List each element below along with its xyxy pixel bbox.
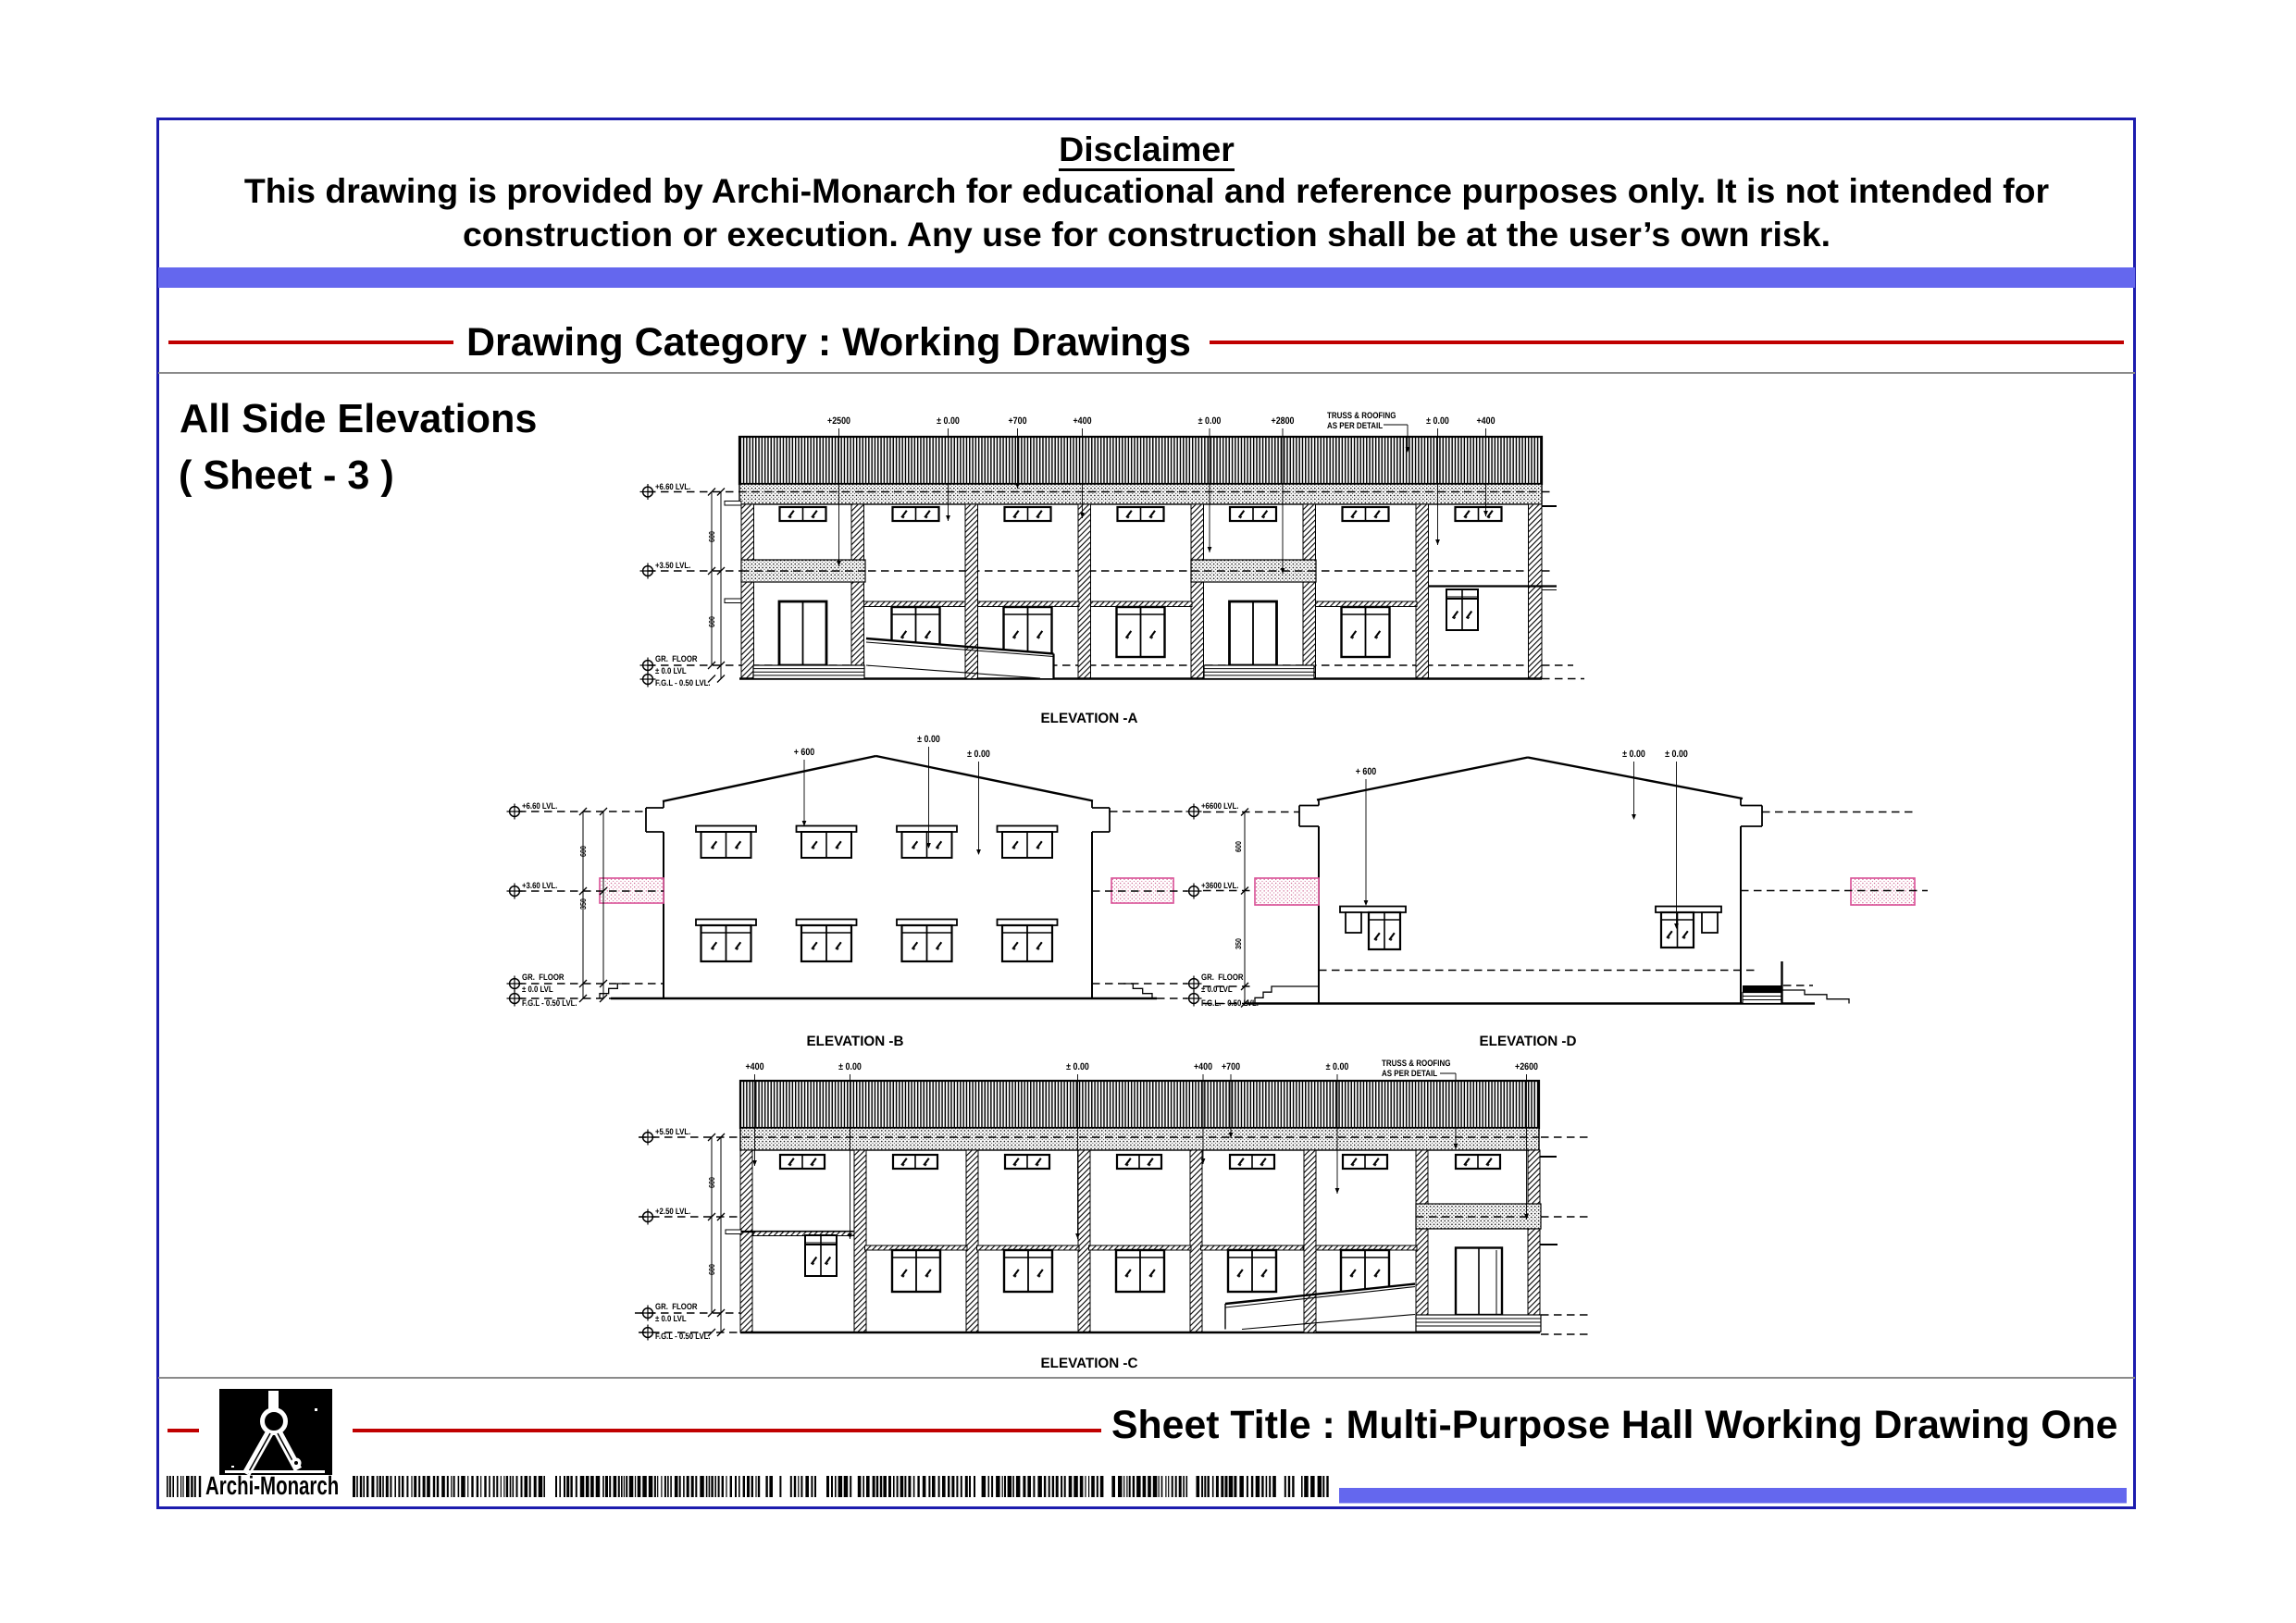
- svg-text:+3.50 LVL.: +3.50 LVL.: [655, 561, 690, 570]
- svg-text:+700: +700: [1008, 415, 1026, 427]
- svg-text:+ 600: + 600: [794, 747, 815, 758]
- svg-text:600: 600: [707, 1177, 716, 1188]
- svg-text:TRUSS & ROOFING: TRUSS & ROOFING: [1382, 1059, 1450, 1069]
- svg-text:± 0.00: ± 0.00: [937, 415, 960, 427]
- svg-text:GR. FLOOR: GR. FLOOR: [522, 973, 565, 982]
- svg-text:+3.60 LVL.: +3.60 LVL.: [522, 881, 557, 890]
- svg-text:± 0.0 LVL: ± 0.0 LVL: [655, 666, 687, 675]
- svg-text:+2600: +2600: [1515, 1061, 1538, 1072]
- svg-text:+3600 LVL.: +3600 LVL.: [1201, 881, 1238, 890]
- svg-text:± 0.00: ± 0.00: [1198, 415, 1222, 427]
- svg-text:ELEVATION -C: ELEVATION -C: [1041, 1356, 1138, 1371]
- svg-text:600: 600: [578, 846, 588, 857]
- svg-text:± 0.00: ± 0.00: [1066, 1061, 1089, 1072]
- svg-text:± 0.0 LVL: ± 0.0 LVL: [522, 985, 553, 994]
- svg-text:F.G.L - 0.50 LVL.: F.G.L - 0.50 LVL.: [655, 678, 711, 688]
- svg-text:+400: +400: [1194, 1061, 1212, 1072]
- svg-text:GR. FLOOR: GR. FLOOR: [655, 1302, 698, 1311]
- svg-text:± 0.00: ± 0.00: [967, 749, 990, 760]
- svg-text:TRUSS & ROOFING: TRUSS & ROOFING: [1327, 411, 1396, 421]
- svg-text:600: 600: [707, 616, 716, 627]
- svg-text:± 0.00: ± 0.00: [1426, 415, 1449, 427]
- svg-text:+700: +700: [1222, 1061, 1240, 1072]
- svg-text:ELEVATION -A: ELEVATION -A: [1041, 711, 1138, 726]
- svg-text:+400: +400: [745, 1061, 763, 1072]
- svg-text:ELEVATION -B: ELEVATION -B: [807, 1034, 904, 1049]
- svg-text:GR. FLOOR: GR. FLOOR: [655, 654, 698, 663]
- svg-text:+6600 LVL.: +6600 LVL.: [1201, 801, 1238, 811]
- svg-text:AS PER DETAIL: AS PER DETAIL: [1382, 1069, 1437, 1079]
- svg-text:+400: +400: [1073, 415, 1091, 427]
- svg-text:ELEVATION -D: ELEVATION -D: [1480, 1034, 1577, 1049]
- svg-text:± 0.00: ± 0.00: [1326, 1061, 1349, 1072]
- svg-text:+5.50 LVL.: +5.50 LVL.: [655, 1127, 690, 1136]
- svg-text:+2800: +2800: [1271, 415, 1294, 427]
- svg-text:+2500: +2500: [827, 415, 850, 427]
- svg-text:+6.60 LVL.: +6.60 LVL.: [522, 801, 557, 811]
- svg-text:± 0.00: ± 0.00: [838, 1061, 862, 1072]
- svg-text:+ 600: + 600: [1356, 766, 1377, 777]
- svg-text:F.G.L - 0.50 LVL.: F.G.L - 0.50 LVL.: [522, 998, 577, 1008]
- svg-text:AS PER DETAIL: AS PER DETAIL: [1327, 421, 1383, 431]
- svg-text:600: 600: [707, 531, 716, 542]
- svg-text:± 0.00: ± 0.00: [1665, 749, 1688, 760]
- svg-text:350: 350: [578, 898, 588, 910]
- svg-text:+6.60 LVL.: +6.60 LVL.: [655, 482, 690, 491]
- svg-text:F.G.L - 0.50 LVL.: F.G.L - 0.50 LVL.: [655, 1332, 711, 1341]
- svg-text:± 0.00: ± 0.00: [917, 734, 940, 745]
- svg-text:+400: +400: [1476, 415, 1495, 427]
- svg-text:600: 600: [707, 1264, 716, 1275]
- svg-text:600: 600: [1234, 841, 1243, 852]
- svg-text:Archi-Monarch: Archi-Monarch: [205, 1471, 339, 1500]
- svg-text:350: 350: [1234, 938, 1243, 949]
- svg-text:± 0.00: ± 0.00: [1622, 749, 1645, 760]
- svg-text:GR. FLOOR: GR. FLOOR: [1201, 973, 1244, 982]
- svg-text:+2.50 LVL.: +2.50 LVL.: [655, 1207, 690, 1216]
- svg-text:± 0.0 LVL: ± 0.0 LVL: [655, 1314, 687, 1323]
